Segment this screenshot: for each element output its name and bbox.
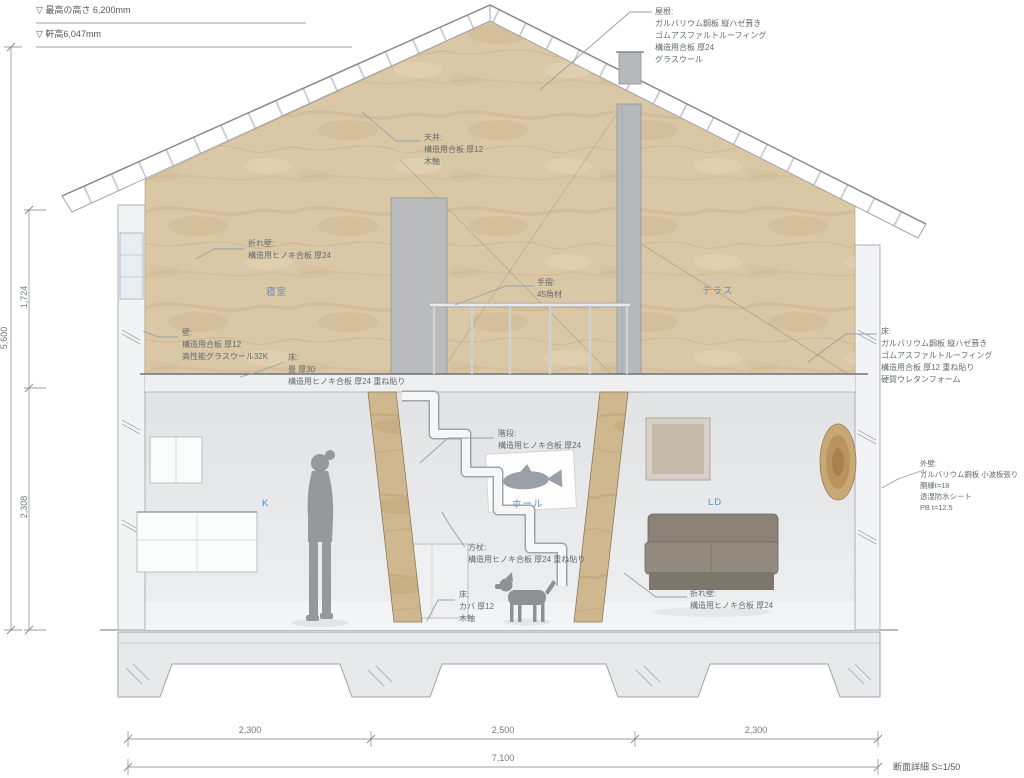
house-section-canvas xyxy=(0,0,1024,778)
duct xyxy=(617,104,641,392)
dim-height-lower: 2,308 xyxy=(19,485,31,529)
room-label-kitchen: K xyxy=(262,498,269,509)
note-handrail: 手摺: 45角材 xyxy=(537,277,562,301)
level-max-height: ▽ 最高の高さ 6,200mm xyxy=(36,3,130,16)
level-eave-height: ▽ 軒高6,047mm xyxy=(36,27,101,40)
room-label-living-dining: LD xyxy=(708,497,722,508)
dim-height-upper: 1,724 xyxy=(19,275,31,319)
room-label-terrace: テラス xyxy=(702,283,733,297)
room-label-bedroom: 寝室 xyxy=(266,284,287,298)
note-tatami-floor: 床: 畳 厚30 構造用ヒノキ合板 厚24 重ね貼り xyxy=(288,352,405,388)
room-label-hall: ホール xyxy=(512,496,544,510)
loft-door xyxy=(391,198,447,378)
note-terrace-floor: 床: ガルバリウム鋼板 縦ハゼ葺き ゴムアスファルトルーフィング 構造用合板 厚… xyxy=(881,326,1023,386)
note-wall: 壁: 構造用合板 厚12 高性能グラスウール32K xyxy=(182,327,268,363)
sofa xyxy=(645,514,778,590)
dim-span-center: 2,500 xyxy=(463,725,543,735)
note-stairs: 階段: 構造用ヒノキ合板 厚24 xyxy=(498,428,581,452)
note-fold-wall-upper: 折れ壁: 構造用ヒノキ合板 厚24 xyxy=(248,238,331,262)
dim-span-left: 2,300 xyxy=(210,725,290,735)
section-drawing: ▽ 最高の高さ 6,200mm ▽ 軒高6,047mm 5,600 1,724 … xyxy=(0,0,1024,778)
note-floor-kaba: 床: カバ 厚12 木軸 xyxy=(459,589,494,625)
loft-floor xyxy=(140,374,868,392)
note-ceiling: 天井: 構造用合板 厚12 木軸 xyxy=(424,132,483,168)
note-outer-wall: 外壁: ガルバリウム鋼板 小波板張り 胴縁t=18 透湿防水シート PB t=1… xyxy=(920,458,1024,514)
dim-height-total: 5,600 xyxy=(0,316,11,360)
note-brace: 方杖: 構造用ヒノキ合板 厚24 重ね貼り xyxy=(468,542,585,566)
roof-vent xyxy=(619,52,641,84)
drawing-title: 断面詳細 S=1/50 xyxy=(893,760,960,773)
bedroom-window xyxy=(120,233,143,299)
note-roof: 屋根: ガルバリウム鋼板 縦ハゼ葺き ゴムアスファルトルーフィング 構造用合板 … xyxy=(655,6,766,66)
note-fold-wall-lower: 折れ壁: 構造用ヒノキ合板 厚24 xyxy=(690,588,773,612)
dim-span-total: 7,100 xyxy=(463,753,543,763)
dim-span-right: 2,300 xyxy=(716,725,796,735)
